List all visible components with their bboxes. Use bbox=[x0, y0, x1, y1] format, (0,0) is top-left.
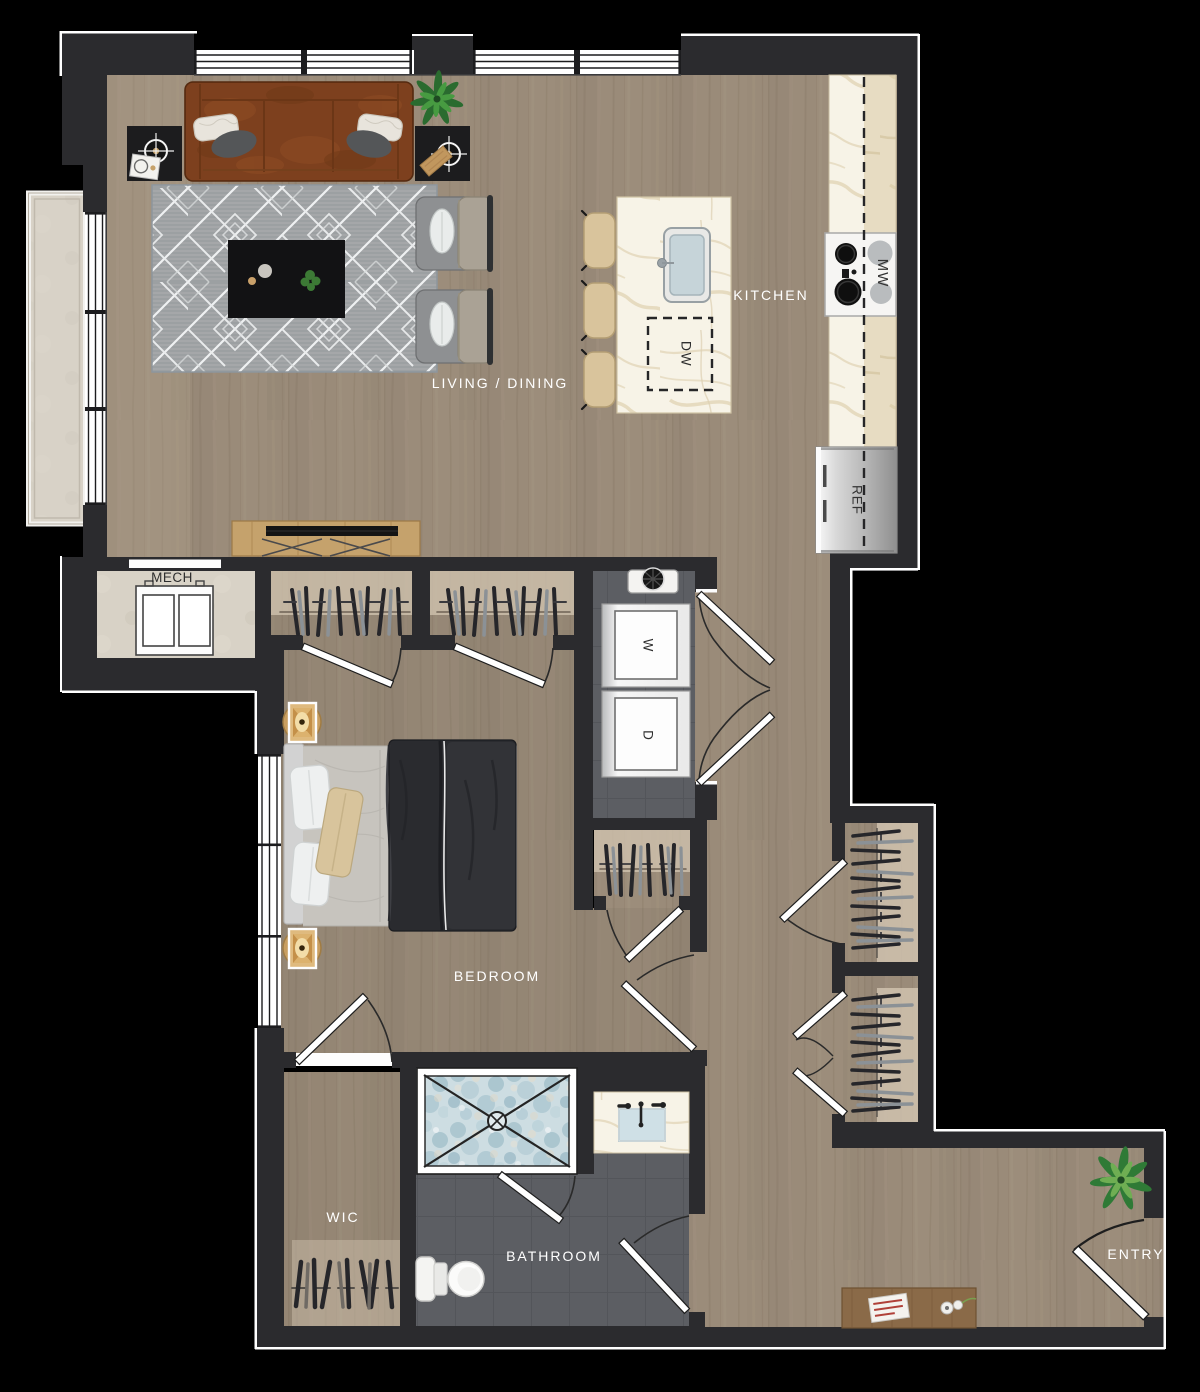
svg-text:BATHROOM: BATHROOM bbox=[506, 1248, 602, 1264]
svg-text:LIVING / DINING: LIVING / DINING bbox=[432, 375, 569, 391]
svg-text:REF: REF bbox=[849, 485, 864, 515]
svg-text:KITCHEN: KITCHEN bbox=[733, 287, 808, 303]
svg-text:W: W bbox=[640, 639, 655, 652]
svg-text:MW: MW bbox=[874, 259, 891, 288]
svg-text:MECH: MECH bbox=[151, 570, 193, 585]
svg-text:D: D bbox=[640, 730, 655, 740]
svg-text:DW: DW bbox=[678, 341, 694, 367]
svg-text:ENTRY: ENTRY bbox=[1107, 1246, 1164, 1262]
svg-text:WIC: WIC bbox=[326, 1209, 359, 1225]
svg-text:BEDROOM: BEDROOM bbox=[454, 968, 540, 984]
